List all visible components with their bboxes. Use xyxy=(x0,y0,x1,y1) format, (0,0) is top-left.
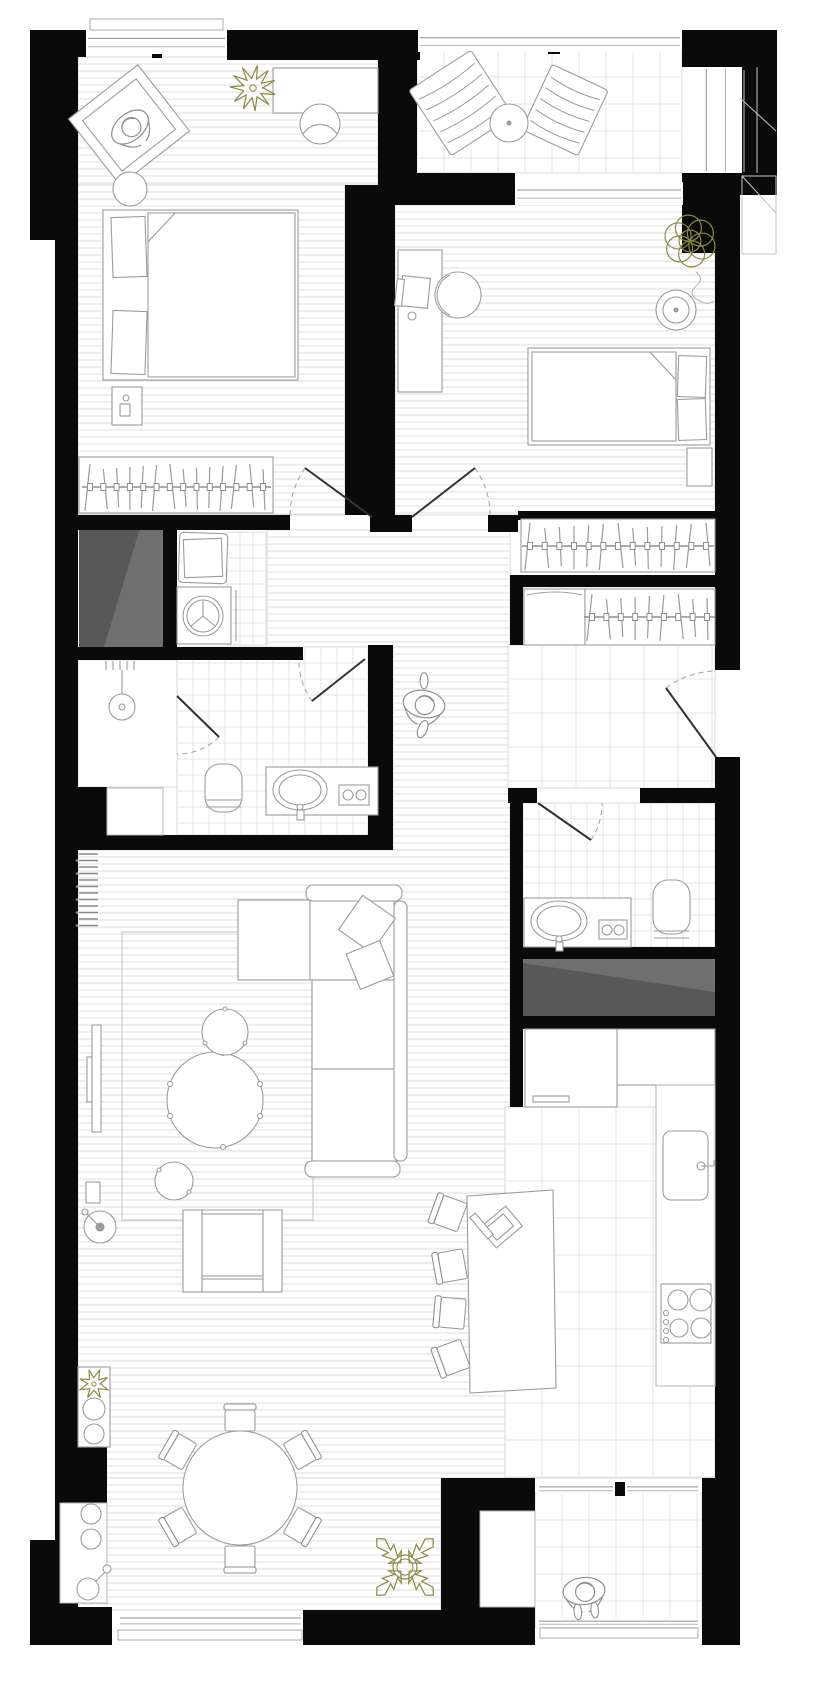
bed-bedroom1 xyxy=(103,210,298,380)
floor-plan-drawing xyxy=(0,0,815,1685)
wall xyxy=(55,240,78,1607)
wall xyxy=(303,1610,460,1645)
nightstand-bedroom1 xyxy=(112,387,142,425)
wall xyxy=(510,575,717,587)
wall xyxy=(740,30,777,195)
dining-chair xyxy=(224,1404,256,1431)
wall xyxy=(417,173,515,205)
floor-loggia xyxy=(535,1493,702,1627)
wall xyxy=(510,587,523,645)
wall xyxy=(368,645,393,850)
wall-niche-loggia xyxy=(480,1511,535,1607)
wall xyxy=(30,1607,112,1645)
wardrobe-rail-a xyxy=(521,519,715,572)
wall xyxy=(107,835,393,850)
dresser-closet xyxy=(524,589,585,645)
island-chair xyxy=(431,1248,467,1285)
wall xyxy=(55,787,107,850)
kitchen-cabinet-tall xyxy=(525,1029,617,1107)
floor-laundry xyxy=(227,532,267,645)
wall xyxy=(370,515,412,532)
nightstand-bedroom2 xyxy=(687,448,712,486)
window-bedroom2-balcony xyxy=(515,182,683,205)
wall xyxy=(640,788,715,803)
window-mullion xyxy=(615,1482,625,1496)
window-dining xyxy=(118,1612,303,1629)
wall xyxy=(510,788,523,1107)
wall xyxy=(78,30,86,57)
floor-entry xyxy=(508,645,715,788)
toilet-bathroom xyxy=(205,764,242,812)
balcony-table xyxy=(490,104,528,142)
cooktop xyxy=(661,1284,712,1343)
bed-bedroom2 xyxy=(528,348,710,445)
wall xyxy=(60,515,290,530)
shaft-left xyxy=(79,528,163,647)
wall xyxy=(441,1478,535,1511)
floor-shower xyxy=(78,660,177,787)
wall xyxy=(488,515,518,532)
wall xyxy=(345,185,395,515)
kitchen-cabinet-2 xyxy=(617,1029,715,1085)
chair-bedroom2 xyxy=(435,272,481,318)
side-table-bedroom1 xyxy=(113,172,147,206)
wall xyxy=(702,1478,740,1645)
floor-corridor xyxy=(393,647,510,850)
window-balcony-top xyxy=(418,30,682,52)
wall xyxy=(163,528,177,647)
wall-niche-shower xyxy=(107,788,163,835)
wall xyxy=(523,947,715,959)
wall xyxy=(78,1447,107,1503)
sill-top xyxy=(90,19,223,30)
floor-bedroom2-upper xyxy=(395,205,683,247)
drum-table-bedroom2 xyxy=(656,290,696,330)
wall xyxy=(523,1016,715,1029)
island-chair xyxy=(433,1296,467,1331)
wall xyxy=(378,30,417,205)
window-loggia-right xyxy=(625,1483,700,1494)
window-shaft-opening xyxy=(687,67,742,173)
desk-bedroom2 xyxy=(398,250,442,392)
laundry-basket xyxy=(178,532,228,584)
washing-machine xyxy=(177,587,236,644)
side-ball-table xyxy=(155,1162,193,1200)
wardrobe-rail-b xyxy=(584,589,715,645)
shaft-right xyxy=(523,959,715,1016)
wall xyxy=(715,247,740,670)
armchair-living xyxy=(183,1210,282,1292)
dining-table xyxy=(183,1431,297,1545)
kitchen-sink xyxy=(663,1131,714,1200)
sill-dining xyxy=(118,1630,302,1640)
sill-loggia xyxy=(540,1628,698,1638)
wardrobe-rail-bedroom1 xyxy=(79,457,273,513)
apartment-floor-plan xyxy=(0,0,815,1685)
stool-bedroom1 xyxy=(300,104,340,144)
toilet-wc xyxy=(653,880,690,938)
wall xyxy=(55,647,303,660)
vanity-bathroom xyxy=(266,767,378,820)
wall xyxy=(30,30,78,240)
window-bedroom1 xyxy=(86,30,227,54)
speaker xyxy=(86,1182,100,1203)
floor-hall xyxy=(267,530,510,647)
dining-chair xyxy=(224,1546,256,1573)
coffee-table-large xyxy=(167,1051,263,1150)
window-loggia-bottom xyxy=(537,1618,700,1627)
vanity-wc xyxy=(524,898,631,951)
wall xyxy=(715,757,740,1478)
window-loggia-left xyxy=(537,1483,615,1494)
wall xyxy=(480,1607,535,1645)
floor-plan-page xyxy=(0,0,815,1685)
